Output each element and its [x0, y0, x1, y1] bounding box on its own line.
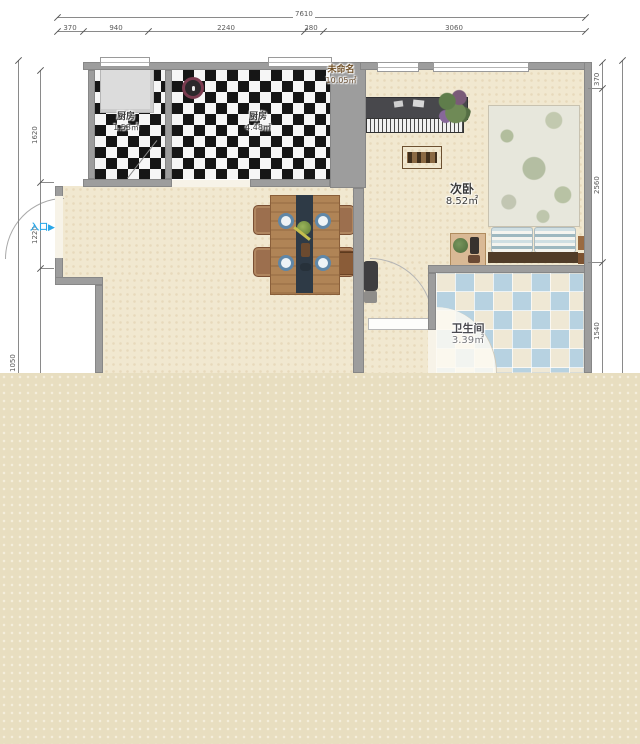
entrance-label: 入口 [30, 223, 48, 233]
dim-top-seg-2: 2240 [206, 24, 246, 32]
plant-icon[interactable] [437, 88, 471, 126]
room-label-kitchen: 厨房 4.48㎡ [228, 112, 288, 132]
stove-knob [192, 86, 195, 91]
entrance-opening [55, 196, 63, 258]
dim-right-seg-0: 370 [593, 64, 601, 86]
wall-kitchen-bottom-right [250, 179, 330, 187]
room-area-bedroom: 8.52㎡ [432, 196, 492, 208]
dim-top-seg-1: 940 [96, 24, 136, 32]
dim-line-right-outer [622, 60, 623, 373]
wall-living-right [353, 188, 364, 373]
window-bedroom-1 [377, 62, 419, 72]
bedroom-desk[interactable] [402, 146, 442, 169]
door-hinge-2 [578, 253, 584, 264]
plate-3 [315, 213, 331, 229]
wall-kitchen-divider [165, 70, 172, 179]
plate-2 [278, 255, 294, 271]
dim-left-outer: 1050 [9, 342, 17, 372]
nightstand-bottle-1 [470, 237, 479, 254]
wall-kitchen-left [88, 70, 95, 179]
bed-duvet[interactable] [488, 105, 580, 227]
table-bottle [301, 243, 310, 257]
wall-kitchen-bottom-left [83, 179, 172, 187]
room-label-bathroom: 卫生间 3.39㎡ [430, 322, 506, 347]
dim-top-seg-3: 280 [298, 24, 324, 32]
floor-plan-canvas: 未命名 10.05㎡ 厨房 1.53㎡ 厨房 4.48㎡ 次卧 8.52㎡ 卫生… [0, 0, 640, 744]
room-label-bedroom: 次卧 8.52㎡ [432, 182, 492, 208]
dim-right-seg-1: 2560 [593, 158, 601, 194]
bed-pillow-left [491, 227, 533, 253]
dim-stub [40, 182, 54, 183]
appliance-counter[interactable] [100, 67, 154, 113]
plate-4 [315, 255, 331, 271]
dim-top-seg-4: 3060 [434, 24, 474, 32]
room-name-kitchen-small: 厨房 [96, 112, 156, 123]
room-label-kitchen-small: 厨房 1.53㎡ [96, 112, 156, 132]
wall-bathroom-top [428, 265, 592, 273]
dim-left-seg-0: 1620 [31, 108, 39, 144]
dim-stub [40, 268, 54, 269]
room-name-bedroom: 次卧 [432, 182, 492, 196]
tan-cover-block [0, 373, 640, 744]
wall-notch-horizontal [55, 277, 103, 285]
bed-pillow-right [534, 227, 576, 253]
nightstand-plant-icon [453, 238, 468, 253]
piano-sheet-2 [413, 99, 425, 107]
dim-top-total: 7610 [293, 10, 315, 18]
entrance-arrow-icon: ▶ [48, 223, 55, 233]
door-hinge-1 [578, 236, 584, 250]
room-area-bathroom: 3.39㎡ [430, 335, 506, 347]
piano-sheet-1 [394, 100, 404, 107]
tick [582, 14, 589, 21]
dim-line-left-outer [18, 60, 19, 373]
entrance-marker: 入口▶ [30, 220, 55, 233]
room-label-unnamed: 未命名 10.05㎡ [314, 65, 368, 85]
nightstand-bottle-2 [468, 255, 480, 263]
corridor-door-leaf[interactable] [368, 318, 434, 330]
dim-line-top-total [57, 17, 585, 18]
room-name-kitchen: 厨房 [228, 112, 288, 123]
dim-top-seg-0: 370 [60, 24, 80, 32]
kitchen-doorway [172, 180, 250, 187]
tick [582, 28, 589, 35]
bed-headboard [488, 252, 578, 263]
room-area-kitchen: 4.48㎡ [228, 123, 288, 133]
room-name-bathroom: 卫生间 [430, 322, 506, 335]
wall-right [584, 62, 592, 373]
wall-notch-vertical [95, 285, 103, 373]
plate-1 [278, 213, 294, 229]
room-name-unnamed: 未命名 [314, 65, 368, 76]
room-area-kitchen-small: 1.53㎡ [96, 123, 156, 133]
room-area-unnamed: 10.05㎡ [314, 76, 368, 86]
dim-line-right-chain [602, 62, 603, 373]
window-kitchen-small [100, 57, 150, 67]
table-bowl [300, 263, 311, 271]
dim-right-seg-2: 1540 [593, 304, 601, 340]
window-bedroom-2 [433, 62, 529, 72]
